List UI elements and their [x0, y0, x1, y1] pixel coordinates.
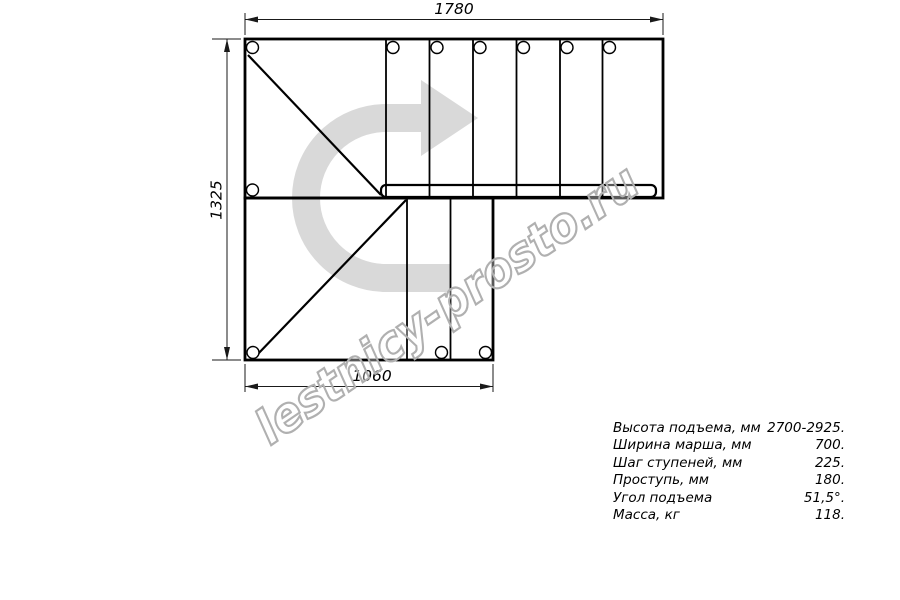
dimension-left: 1325 [208, 39, 242, 360]
mount-hole [387, 42, 399, 54]
spec-label: Ширина марша, мм [613, 437, 752, 454]
spec-label: Масса, кг [613, 507, 680, 524]
mount-hole [247, 184, 259, 196]
stair-drawing-page: 1780 1325 1060 lestnicy-prosto.ru Высота… [0, 0, 900, 600]
spec-label: Высота подъема, мм [613, 420, 761, 437]
spec-table: Высота подъема, мм 2700-2925. Ширина мар… [613, 420, 845, 524]
mount-hole [604, 42, 616, 54]
dim-arrow-icon [245, 17, 258, 23]
spec-row-step-pitch: Шаг ступеней, мм 225. [613, 455, 845, 472]
mount-hole [561, 42, 573, 54]
direction-arrow [306, 80, 478, 278]
dim-arrow-icon [480, 384, 493, 390]
spec-value: 51,5°. [804, 490, 845, 507]
spec-label: Проступь, мм [613, 472, 709, 489]
mount-hole [480, 347, 492, 359]
spec-value: 180. [815, 472, 845, 489]
spec-value: 700. [815, 437, 845, 454]
mount-hole [436, 347, 448, 359]
spec-row-height: Высота подъема, мм 2700-2925. [613, 420, 845, 437]
mount-hole [247, 347, 259, 359]
dim-arrow-icon [650, 17, 663, 23]
dimension-top: 1780 [245, 0, 663, 35]
spec-row-mass: Масса, кг 118. [613, 507, 845, 524]
spec-value: 225. [815, 455, 845, 472]
spec-row-angle: Угол подъема 51,5°. [613, 490, 845, 507]
spec-label: Шаг ступеней, мм [613, 455, 742, 472]
spec-label: Угол подъема [613, 490, 712, 507]
spec-row-flight-width: Ширина марша, мм 700. [613, 437, 845, 454]
mount-hole [474, 42, 486, 54]
dim-arrow-icon [245, 384, 258, 390]
mount-hole [431, 42, 443, 54]
mount-hole [247, 42, 259, 54]
dim-label-left: 1325 [208, 180, 226, 219]
dim-arrow-icon [224, 39, 230, 52]
mount-hole [518, 42, 530, 54]
spec-value: 118. [815, 507, 845, 524]
dim-label-top: 1780 [434, 0, 474, 18]
spec-row-tread: Проступь, мм 180. [613, 472, 845, 489]
spec-value: 2700-2925. [767, 420, 845, 437]
dim-arrow-icon [224, 347, 230, 360]
